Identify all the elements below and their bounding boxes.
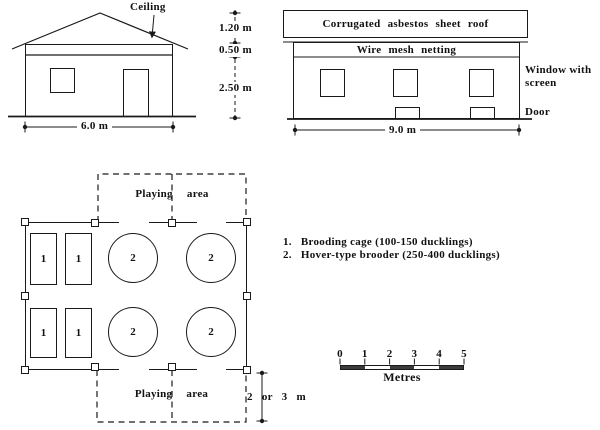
brooder-number: 2 [208,252,214,264]
side-elevation-door-2 [470,107,495,119]
scale-segment-empty [414,366,438,369]
wall-opening-bottom-2 [197,369,226,372]
front-elevation-wall [25,44,173,117]
scale-tick-1: 1 [359,349,371,360]
wall-opening-top-2 [197,221,226,224]
playing-area-bottom-label: Playing area [97,389,246,400]
wire-mesh-netting-label: Wire mesh netting [293,45,520,56]
hover-brooder: 2 [108,233,158,283]
wall-post [168,363,176,371]
brooding-cage: 1 [65,308,92,358]
side-elevation-window-2 [393,69,418,97]
hover-brooder: 2 [186,307,236,357]
scale-tick-5: 5 [458,349,470,360]
legend-item-1-label: Brooding cage (100-150 ducklings) [301,236,473,248]
scale-unit-label: Metres [372,372,432,383]
front-elevation-door [123,69,149,117]
side-width-dim-label: 9.0 m [385,125,420,136]
corner-post [243,218,251,226]
side-elevation-window-1 [320,69,345,97]
cage-number: 1 [76,327,82,339]
legend-item-2-number: 2. [283,249,292,261]
side-elevation-door-1 [395,107,420,119]
door-label: Door [525,107,550,118]
wall-post [243,292,251,300]
legend-item-2-label: Hover-type brooder (250-400 ducklings) [301,249,500,261]
wall-post [168,219,176,227]
scale-bar [340,365,464,370]
front-width-dim-label: 6.0 m [77,121,112,132]
wall-post [91,219,99,227]
roof-height-dim-label: 1.20 m [217,22,254,35]
front-elevation-window [50,68,75,93]
scale-tick-2: 2 [384,349,396,360]
scale-tick-0: 0 [334,349,346,360]
scale-tick-4: 4 [433,349,445,360]
ceiling-label: Ceiling [130,2,166,13]
scale-segment-empty [365,366,389,369]
scale-segment-filled [390,366,414,369]
corner-post [21,366,29,374]
brooder-number: 2 [130,252,136,264]
wall-opening-bottom-1 [119,369,149,372]
scale-segment-filled [341,366,365,369]
duck-brooder-house-figure: 1 1 1 1 2 2 2 2 [0,0,600,430]
legend-item-2: 2. Hover-type brooder (250-400 ducklings… [283,249,500,261]
brooding-cage: 1 [30,308,57,358]
cage-number: 1 [76,253,82,265]
legend-item-1: 1. Brooding cage (100-150 ducklings) [283,236,473,248]
cage-number: 1 [41,327,47,339]
legend-item-1-number: 1. [283,236,292,248]
hover-brooder: 2 [186,233,236,283]
window-with-screen-label: Window with screen [525,64,597,90]
extension-dim-label: 2 or 3 m [247,392,306,403]
corner-post [21,218,29,226]
scale-segment-filled [439,366,463,369]
corner-post [243,366,251,374]
wall-opening-top-1 [119,221,149,224]
brooding-cage: 1 [30,233,57,285]
brooder-number: 2 [208,326,214,338]
playing-area-top-label: Playing area [98,189,246,200]
roof-material-label: Corrugated asbestos sheet roof [283,19,528,30]
cage-number: 1 [41,253,47,265]
hover-brooder: 2 [108,307,158,357]
wall-post [91,363,99,371]
scale-tick-3: 3 [408,349,420,360]
brooding-cage: 1 [65,233,92,285]
ceiling-arrow [152,15,154,37]
netting-height-dim-label: 0.50 m [217,44,254,57]
wall-height-dim-label: 2.50 m [217,82,254,95]
wall-post [21,292,29,300]
side-elevation-window-3 [469,69,494,97]
brooder-number: 2 [130,326,136,338]
